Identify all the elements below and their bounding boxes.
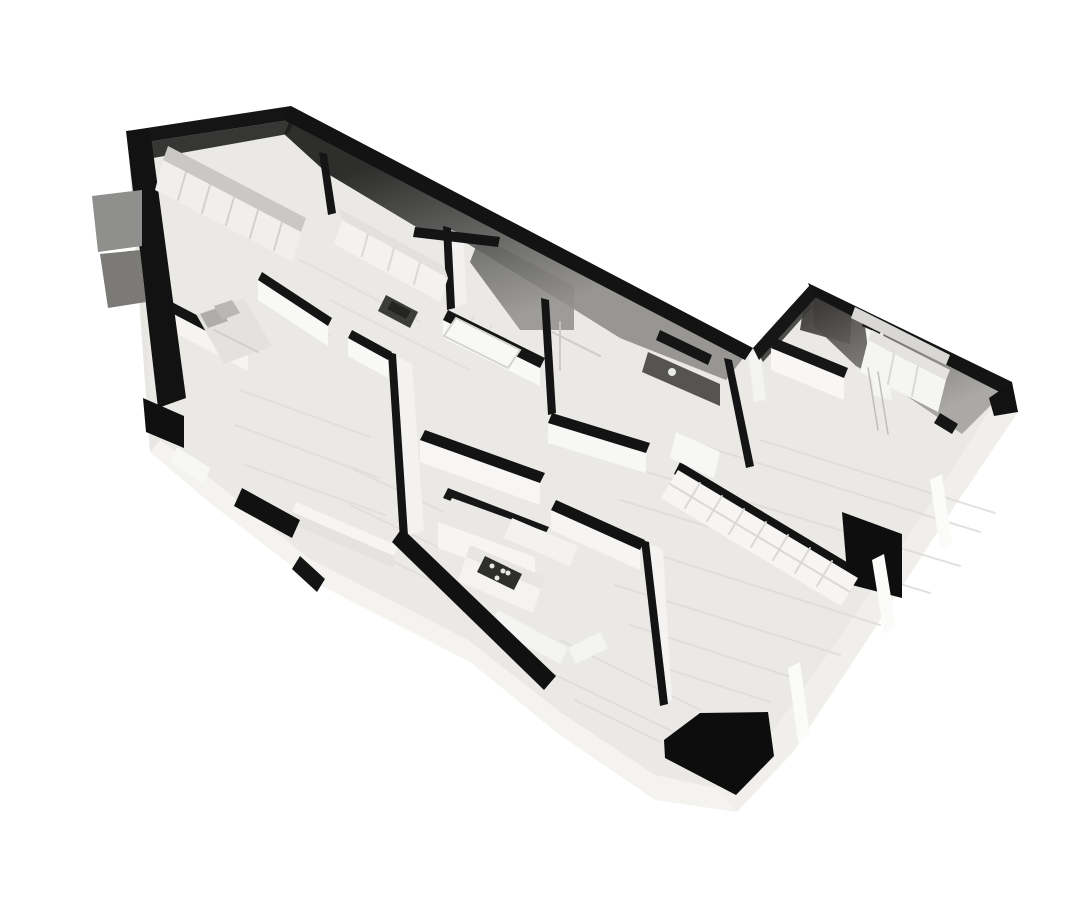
- stove-burner: [501, 569, 506, 574]
- stove-burner: [495, 576, 500, 581]
- vanity-sink: [668, 368, 676, 376]
- stove-burner: [490, 564, 495, 569]
- floor-plan-viewport: [0, 0, 1085, 923]
- stove-burner: [506, 571, 511, 576]
- doorway-dark: [100, 250, 146, 308]
- floor-plan-3d-render: [0, 0, 1085, 923]
- open-door-panel: [92, 190, 142, 252]
